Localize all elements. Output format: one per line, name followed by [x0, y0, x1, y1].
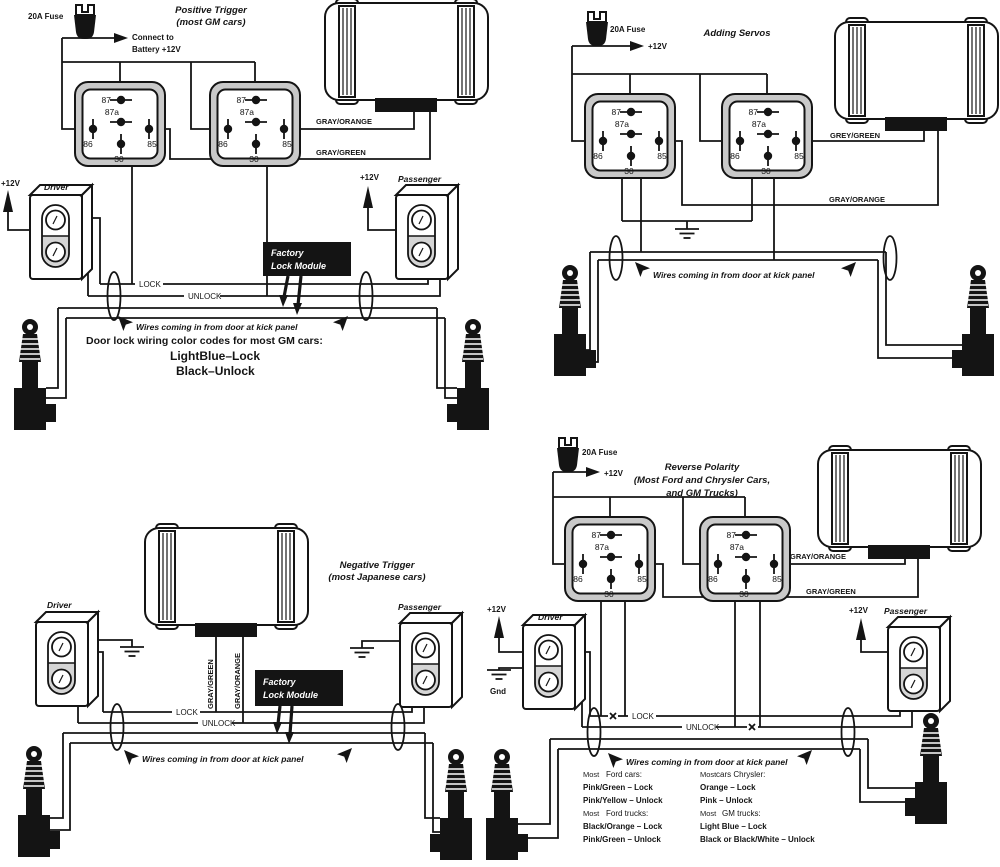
relay-2	[700, 517, 790, 601]
cursor-arrow-icon	[797, 750, 812, 765]
gray-orange-wire-label: GRAY/ORANGE	[829, 195, 885, 204]
unlock-wire-label: UNLOCK	[202, 719, 236, 728]
panel-positive-trigger: Factory Lock Module Positive Trigger (mo…	[1, 0, 489, 430]
ground-icon	[350, 648, 374, 657]
plus12v-label: +12V	[604, 469, 624, 478]
passenger-door-actuator	[430, 749, 472, 860]
passenger-door-switch	[400, 613, 462, 707]
ground-icon	[675, 229, 699, 238]
connect-to-battery-label2: Battery +12V	[132, 45, 181, 54]
passenger-label: Passenger	[398, 602, 442, 612]
plus12v-label: +12V	[1, 179, 21, 188]
codes-chrysler: cars Chrysler:	[716, 770, 765, 779]
panel-negative-trigger: Factory Lock Module Negative Trigger (mo…	[18, 524, 472, 860]
ground-icon	[120, 647, 144, 656]
plus12v-label: +12V	[648, 42, 668, 51]
fuse-icon	[74, 5, 96, 39]
passenger-label: Passenger	[398, 174, 442, 184]
relay-1	[75, 82, 165, 166]
panel-reverse-polarity: Reverse Polarity (Most Ford and Chrysler…	[486, 438, 981, 860]
driver-label: Driver	[47, 600, 72, 610]
fuse-label: 20A Fuse	[28, 12, 64, 21]
passenger-door-switch	[888, 617, 950, 711]
factory-module-line1: Factory	[271, 248, 305, 258]
control-module	[325, 0, 488, 112]
codes-ford-car-unlock: Pink/Yellow – Unlock	[583, 796, 663, 805]
driver-door-switch	[36, 612, 98, 706]
gnd-label: Gnd	[490, 687, 506, 696]
gm-unlock-color: Black–Unlock	[176, 364, 255, 378]
codes-gm-trucks: GM trucks:	[722, 809, 761, 818]
lock-wire-label: LOCK	[176, 708, 198, 717]
wires	[50, 637, 440, 832]
codes-ford-trucks: Ford trucks:	[606, 809, 648, 818]
kick-panel-note: Wires coming in from door at kick panel	[136, 322, 298, 332]
relay-2	[722, 94, 812, 178]
panel-title: Positive Trigger	[175, 5, 248, 16]
cursor-arrow-icon	[841, 262, 856, 277]
kick-panel-note: Wires coming in from door at kick panel	[626, 757, 788, 767]
panel-subtitle2: and GM Trucks)	[666, 488, 738, 499]
cursor-arrow-icon	[337, 748, 352, 763]
codes-most: Most	[583, 809, 600, 818]
gm-lock-color: LightBlue–Lock	[170, 349, 260, 363]
codes-chrysler-lock: Orange – Lock	[700, 783, 756, 792]
control-module	[818, 446, 981, 559]
driver-door-switch	[30, 185, 92, 279]
fuse-label: 20A Fuse	[582, 448, 618, 457]
ground-icon	[487, 670, 511, 679]
driver-door-actuator	[18, 746, 60, 857]
lock-wire-label: LOCK	[139, 280, 161, 289]
control-module	[145, 524, 308, 637]
codes-gm-truck-unlock: Black or Black/White – Unlock	[700, 835, 815, 844]
passenger-door-actuator	[952, 265, 994, 376]
driver-door-actuator	[14, 319, 56, 430]
connect-to-battery-label: Connect to	[132, 33, 174, 42]
factory-module-line2: Lock Module	[263, 690, 318, 700]
kick-panel-note: Wires coming in from door at kick panel	[653, 270, 815, 280]
grey-green-wire-label: GREY/GREEN	[830, 131, 880, 140]
driver-label: Driver	[538, 612, 563, 622]
cursor-arrow-icon	[608, 753, 623, 768]
plus12v-label: +12V	[360, 173, 380, 182]
codes-ford-car-lock: Pink/Green – Lock	[583, 783, 653, 792]
control-module	[835, 18, 998, 131]
gray-orange-wire-label: GRAY/ORANGE	[790, 552, 846, 561]
grommet-ellipse	[610, 236, 623, 280]
unlock-wire-label: UNLOCK	[188, 292, 222, 301]
driver-door-switch	[523, 615, 585, 709]
gm-color-codes-heading: Door lock wiring color codes for most GM…	[86, 335, 323, 347]
cursor-arrow-icon	[124, 750, 139, 765]
codes-ford-truck-lock: Black/Orange – Lock	[583, 822, 663, 831]
codes-ford-cars: Ford cars:	[606, 770, 642, 779]
panel-subtitle: (Most Ford and Chrysler Cars,	[634, 475, 770, 486]
panel-subtitle: (most Japanese cars)	[328, 572, 425, 583]
passenger-door-actuator	[905, 713, 947, 824]
fuse-icon	[557, 438, 579, 472]
codes-most: Most	[583, 770, 600, 779]
codes-most: Most	[700, 770, 717, 779]
passenger-door-actuator	[447, 319, 489, 430]
gray-orange-wire-label: GRAY/ORANGE	[316, 117, 372, 126]
cursor-arrow-icon	[635, 262, 650, 277]
relay-2	[210, 82, 300, 166]
gray-green-wire-label: GRAY/GREEN	[316, 148, 366, 157]
unlock-wire-label: UNLOCK	[686, 723, 720, 732]
plus12v-label: +12V	[849, 606, 869, 615]
driver-door-actuator	[486, 749, 528, 860]
relay-1	[565, 517, 655, 601]
codes-chrysler-unlock: Pink – Unlock	[700, 796, 753, 805]
gray-orange-wire-label: GRAY/ORANGE	[233, 653, 242, 709]
gray-green-wire-label: GRAY/GREEN	[206, 659, 215, 709]
passenger-label: Passenger	[884, 606, 928, 616]
driver-label: Driver	[44, 182, 69, 192]
door-lock-wiring-diagram: 87 87a 86 85 30	[0, 0, 1000, 867]
gray-green-wire-label: GRAY/GREEN	[806, 587, 856, 596]
panel-title: Reverse Polarity	[665, 462, 740, 473]
codes-most: Most	[700, 809, 717, 818]
panel-adding-servos: Adding Servos 20A Fuse +12V GREY/GREEN G…	[554, 12, 998, 376]
wire-color-codes-table: Most Ford cars: Pink/Green – Lock Pink/Y…	[583, 770, 815, 844]
codes-gm-truck-lock: Light Blue – Lock	[700, 822, 767, 831]
panel-title: Negative Trigger	[340, 560, 416, 571]
codes-ford-truck-unlock: Pink/Green – Unlock	[583, 835, 661, 844]
passenger-door-switch	[396, 185, 458, 279]
fuse-icon	[586, 12, 608, 46]
lock-wire-label: LOCK	[632, 712, 654, 721]
kick-panel-note: Wires coming in from door at kick panel	[142, 754, 304, 764]
panel-subtitle: (most GM cars)	[176, 17, 245, 28]
panel-title: Adding Servos	[702, 28, 770, 39]
fuse-label: 20A Fuse	[610, 25, 646, 34]
relay-1	[585, 94, 675, 178]
factory-lock-module-callout: Factory Lock Module	[263, 242, 351, 315]
wiring-diagram-page: 87 87a 86 85 30	[0, 0, 1000, 867]
factory-module-line2: Lock Module	[271, 261, 326, 271]
factory-module-line1: Factory	[263, 677, 297, 687]
plus12v-label: +12V	[487, 605, 507, 614]
